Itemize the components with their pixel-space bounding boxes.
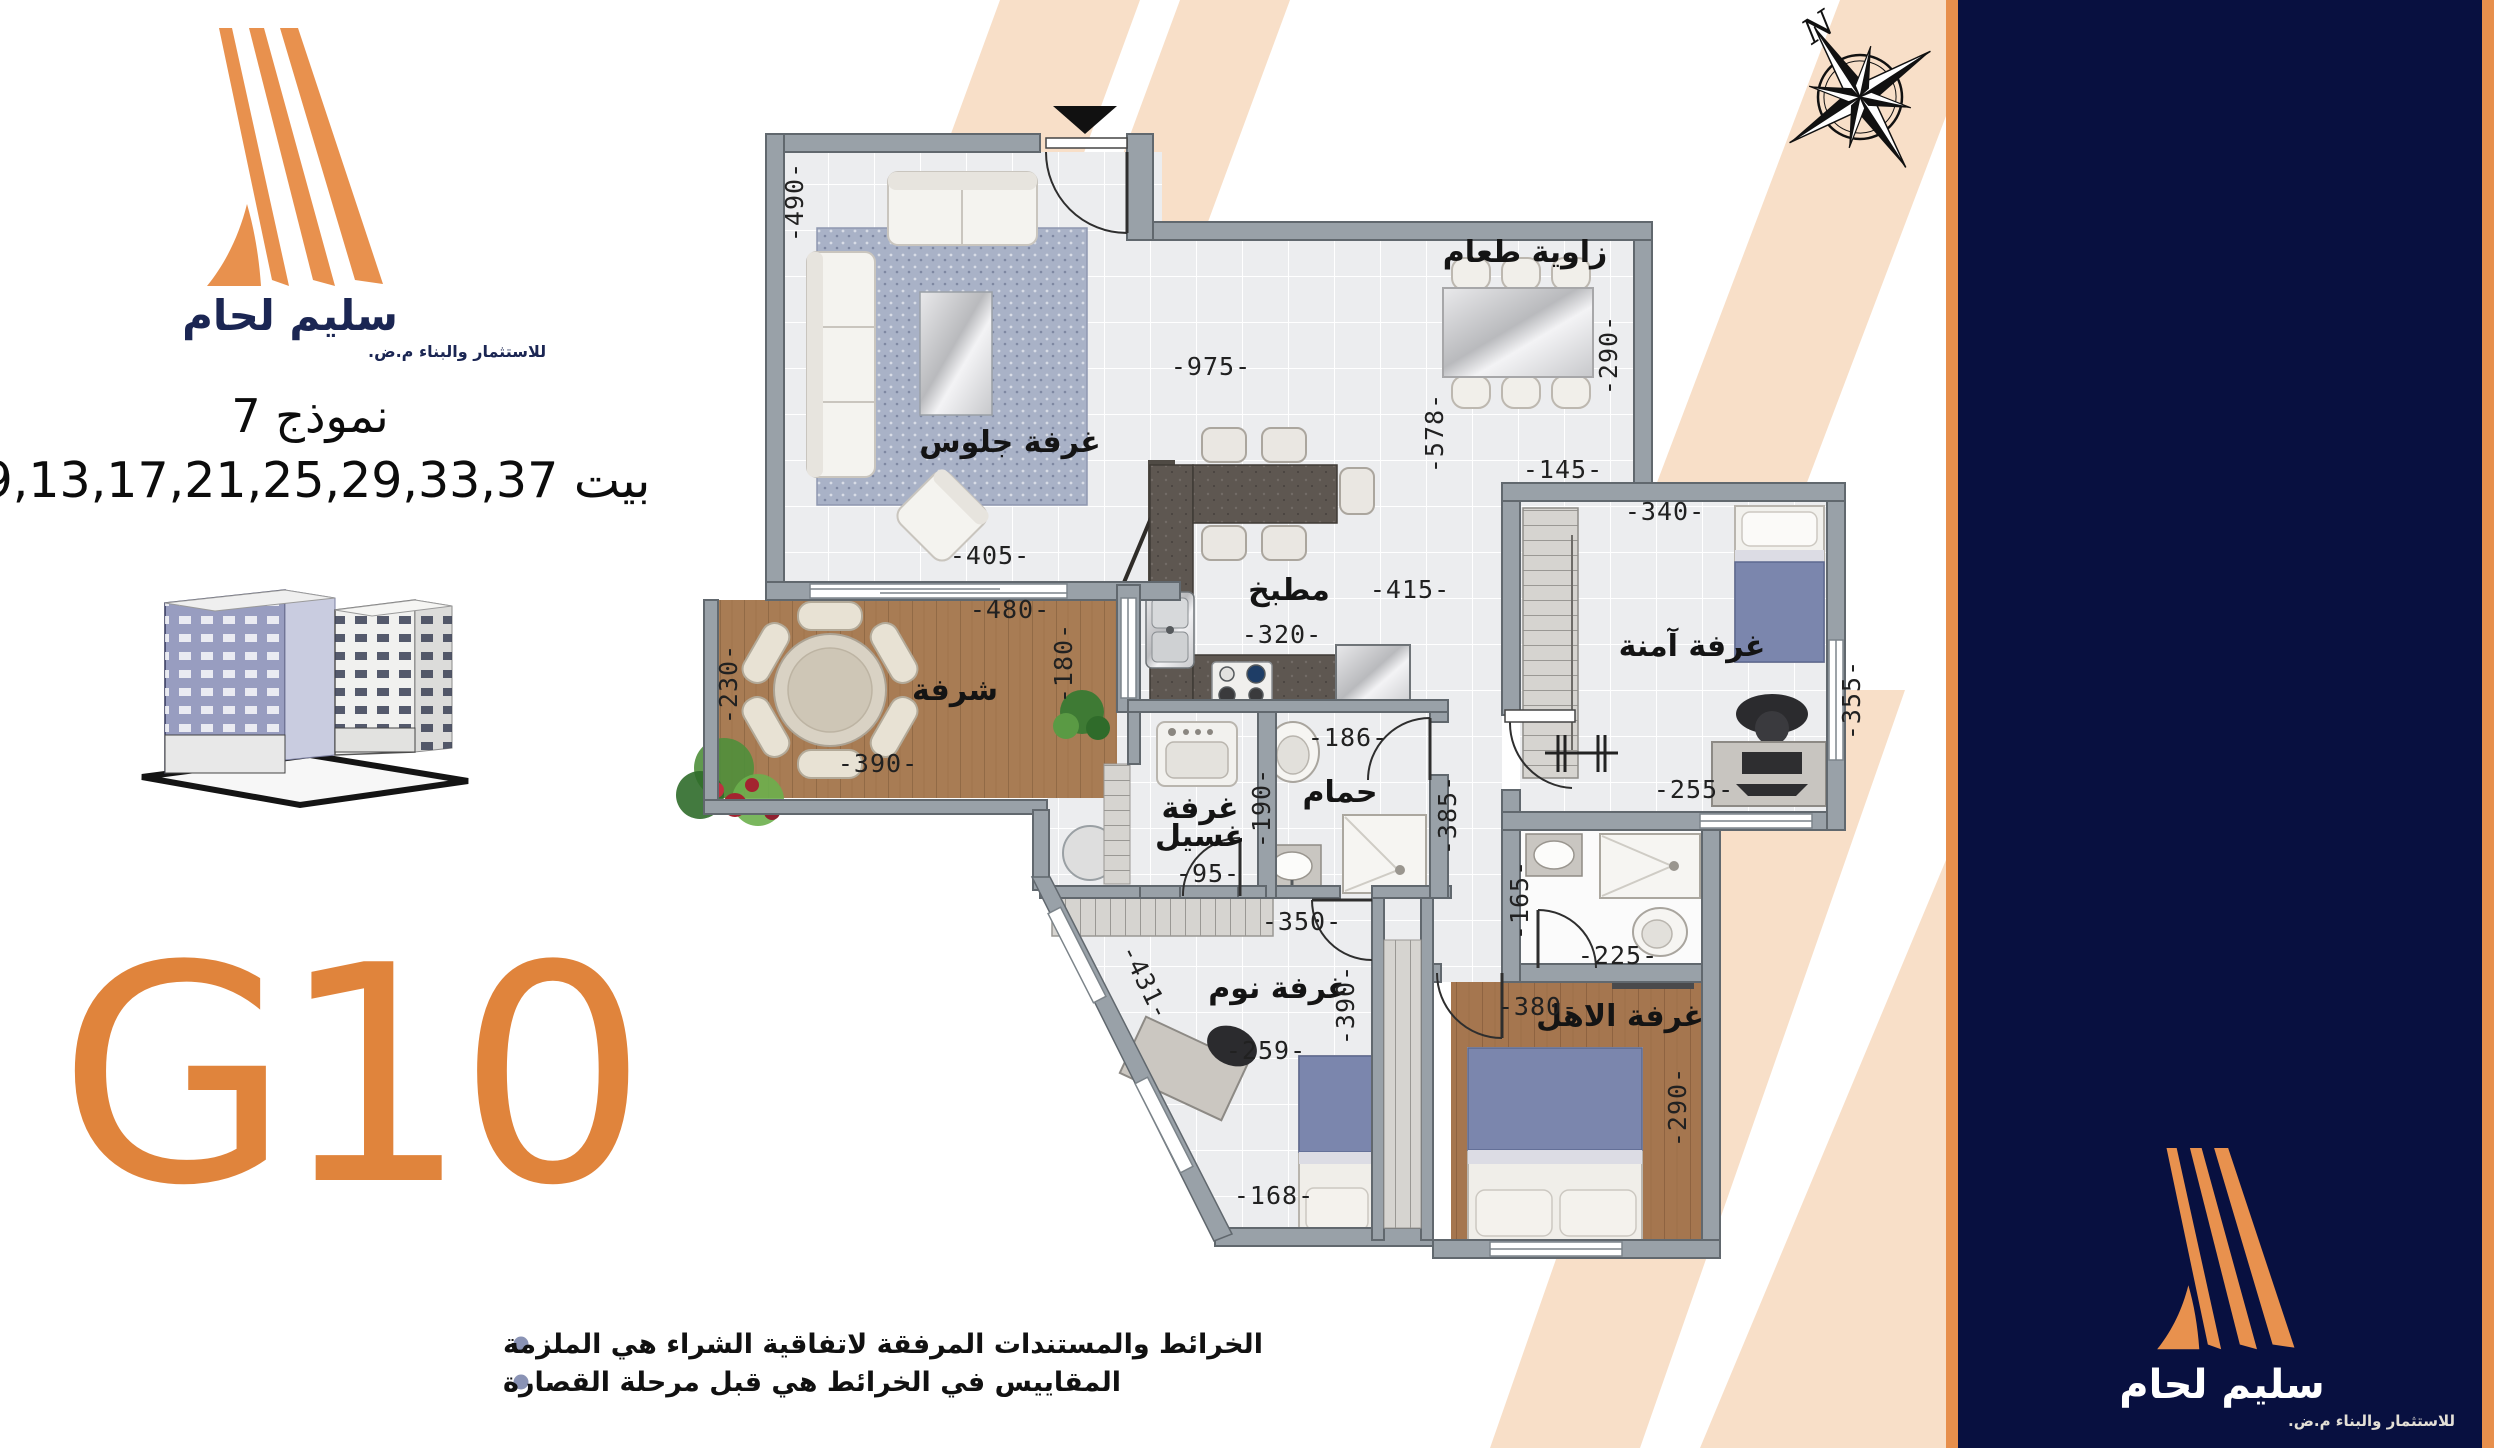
dim-balc-r: -180- xyxy=(1049,623,1078,703)
band-right-orange-stripe xyxy=(2482,0,2494,1448)
dim-balc-l: -230- xyxy=(714,644,743,724)
dim-living-w: -405- xyxy=(950,541,1030,570)
poster-canvas: سليم لحام للاستثمار والبناء م.ض. نموذج 7… xyxy=(0,0,2500,1448)
room-label-safe: غرفة آمنة xyxy=(1619,627,1766,664)
shower xyxy=(1600,834,1700,898)
shower xyxy=(1343,815,1426,893)
wardrobe xyxy=(1052,898,1273,936)
band-left-orange-stripe xyxy=(1946,0,1958,1448)
room-label-living: غرفة جلوس xyxy=(919,425,1101,460)
brand-tagline: للاستثمار والبناء م.ض. xyxy=(2288,1412,2455,1430)
dim-open-h: -578- xyxy=(1420,393,1449,473)
coffee-table xyxy=(920,292,992,415)
room-label-laundry: غسيل xyxy=(1155,819,1245,854)
dim-balc-b: -390- xyxy=(838,749,918,778)
room-label-dining: زاوية طعام xyxy=(1443,235,1608,270)
dim-bed-h: -390- xyxy=(1331,965,1360,1045)
note-line: الخرائط والمستندات المرفقة لاتفاقية الشر… xyxy=(503,1329,1263,1360)
louver-closet xyxy=(1104,764,1130,884)
dim-laundry-w: -95- xyxy=(1176,859,1240,888)
model-title: نموذج 7 xyxy=(231,389,388,444)
wardrobe xyxy=(1523,508,1578,778)
dim-mbath-h: -165- xyxy=(1505,860,1534,940)
brand-name: سليم لحام xyxy=(2119,1362,2324,1408)
dim-safe-gap: -145- xyxy=(1523,455,1603,484)
room-label-bedroom: غرفة نوم xyxy=(1208,971,1348,1006)
kitchen-sink xyxy=(1146,592,1194,668)
dim-bed-w2: -168- xyxy=(1234,1181,1314,1210)
brand-tagline: للاستثمار والبناء م.ض. xyxy=(368,342,546,361)
building-illustration xyxy=(142,590,468,805)
master-bed xyxy=(1468,1048,1642,1242)
dim-master-w: -380- xyxy=(1498,992,1578,1021)
unit-code: G10 xyxy=(58,902,636,1251)
dim-bed-w1: -259- xyxy=(1226,1036,1306,1065)
dim-kitchen-w: -415- xyxy=(1370,575,1450,604)
dim-dining-w: -975- xyxy=(1171,352,1251,381)
dim-hall-w: -350- xyxy=(1262,907,1342,936)
room-label-bath: حمام xyxy=(1303,775,1378,810)
dim-safe-desk: -255- xyxy=(1654,775,1734,804)
dim-balc-w: -480- xyxy=(970,595,1050,624)
room-label-balcony: شرفة xyxy=(912,673,998,708)
dim-master-h: -290- xyxy=(1663,1067,1692,1147)
dim-hall-h: -385- xyxy=(1433,775,1462,855)
brand-name: سليم لحام xyxy=(182,291,398,341)
dim-kitchen-c: -320- xyxy=(1242,620,1322,649)
room-label-kitchen: مطبخ xyxy=(1248,573,1330,608)
dining-set xyxy=(1443,258,1593,408)
dim-bath-t: -186- xyxy=(1308,723,1388,752)
dim-safe-h: -355- xyxy=(1837,660,1866,740)
dim-safe-w: -340- xyxy=(1625,497,1705,526)
laundry-fixtures xyxy=(1157,722,1237,786)
note-line: المقاييس في الخرائط هي قبل مرحلة القصارة xyxy=(503,1367,1121,1398)
houses-list: بيت 9,13,17,21,25,29,33,37 xyxy=(0,452,650,509)
dim-mbath-w: -225- xyxy=(1578,941,1658,970)
dim-laundry-h: -190- xyxy=(1247,768,1276,848)
dim-living-h: -490- xyxy=(780,162,809,242)
dim-dining-h: -290- xyxy=(1594,315,1623,395)
dining-table xyxy=(1443,288,1593,377)
